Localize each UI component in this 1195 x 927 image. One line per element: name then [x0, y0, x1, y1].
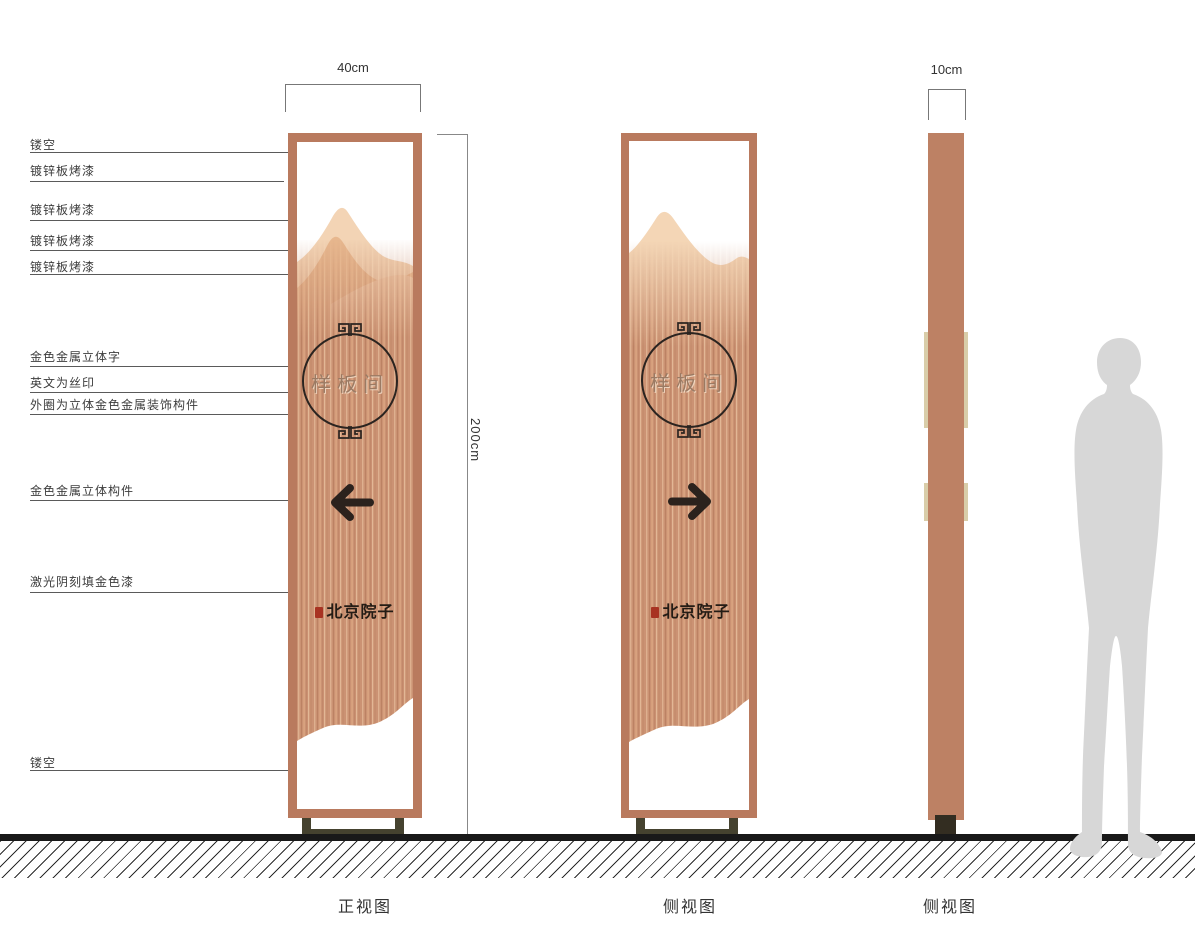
ground-line	[0, 834, 1195, 841]
front-view-panel: 样板间 北京院子	[297, 142, 413, 809]
brand-text: 北京院子	[662, 604, 730, 621]
caption-profile-view: 侧视图	[895, 893, 1005, 917]
dim-height-tick	[437, 134, 467, 135]
fret-ornament-top-icon	[677, 321, 701, 336]
callout-line	[30, 392, 330, 393]
right-arrow-icon	[668, 483, 712, 520]
fret-ornament-top-icon	[338, 322, 362, 337]
side-view-panel: 样板间 北京院子	[629, 141, 749, 810]
brand-calligraphy: 北京院子	[639, 598, 743, 622]
dim-height-line	[467, 134, 468, 836]
ground-hatch	[0, 841, 1195, 878]
dim-height-label: 200cm	[468, 418, 483, 462]
callout-line	[30, 274, 296, 275]
room-name-text: 样板间	[641, 367, 737, 396]
front-view-pillar: 样板间 北京院子	[288, 133, 422, 818]
callout-line	[30, 152, 306, 153]
callout-label: 镂空	[30, 754, 56, 771]
front-panel-artwork	[297, 142, 413, 809]
seal-stamp-icon	[651, 607, 659, 618]
callout-line	[30, 181, 284, 182]
dim-width-side-bracket	[928, 89, 966, 120]
callout-label: 金色金属立体构件	[30, 482, 134, 499]
human-scale-silhouette	[1040, 336, 1190, 860]
callout-label: 镀锌板烤漆	[30, 258, 95, 275]
side-view-pillar: 样板间 北京院子	[621, 133, 757, 818]
dim-width-front-bracket	[285, 84, 421, 112]
caption-front-view: 正视图	[310, 893, 420, 917]
callout-line	[30, 220, 323, 221]
callout-label: 金色金属立体字	[30, 348, 121, 365]
caption-side-view: 侧视图	[635, 893, 745, 917]
callout-line	[30, 592, 306, 593]
room-name-text: 样板间	[302, 368, 398, 397]
callout-label: 镀锌板烤漆	[30, 162, 95, 179]
dim-width-front-label: 40cm	[285, 60, 421, 75]
fret-ornament-bottom-icon	[677, 424, 701, 439]
callout-label: 镀锌板烤漆	[30, 232, 95, 249]
side-panel-artwork	[629, 141, 749, 810]
callout-label: 镀锌板烤漆	[30, 201, 95, 218]
callout-line	[30, 414, 312, 415]
callout-line	[30, 250, 293, 251]
brand-calligraphy: 北京院子	[303, 598, 407, 622]
brand-text: 北京院子	[326, 604, 394, 621]
profile-view-pillar	[928, 133, 964, 820]
dim-width-side-label: 10cm	[910, 62, 983, 77]
callout-label: 激光阴刻填金色漆	[30, 573, 134, 590]
seal-stamp-icon	[315, 607, 323, 618]
callout-label: 英文为丝印	[30, 374, 95, 391]
callout-line	[30, 770, 302, 771]
fret-ornament-bottom-icon	[338, 425, 362, 440]
spec-drawing-canvas: 40cm 10cm 200cm 镂空 镀锌板烤漆 镀锌板烤漆 镀锌板烤漆 镀锌板…	[0, 0, 1195, 927]
callout-label: 外圈为立体金色金属装饰构件	[30, 396, 199, 413]
left-arrow-icon	[330, 484, 374, 521]
callout-label: 镂空	[30, 136, 56, 153]
